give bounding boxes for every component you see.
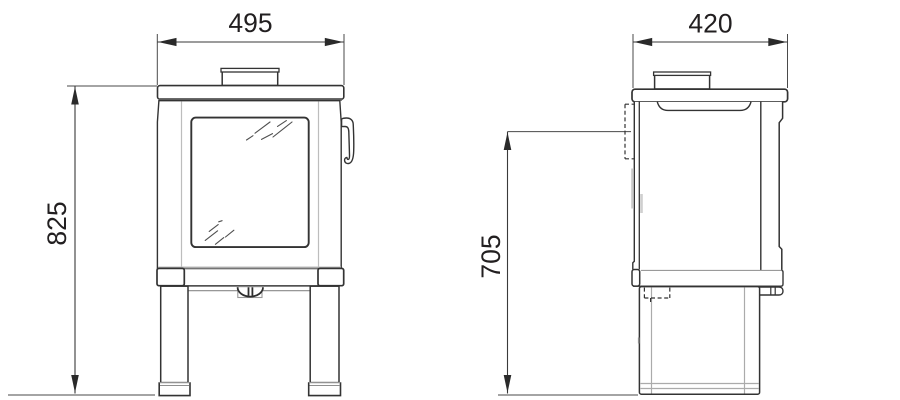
svg-text:825: 825 <box>42 201 72 245</box>
svg-text:495: 495 <box>228 8 272 38</box>
svg-text:420: 420 <box>688 9 732 39</box>
svg-text:705: 705 <box>476 234 506 278</box>
